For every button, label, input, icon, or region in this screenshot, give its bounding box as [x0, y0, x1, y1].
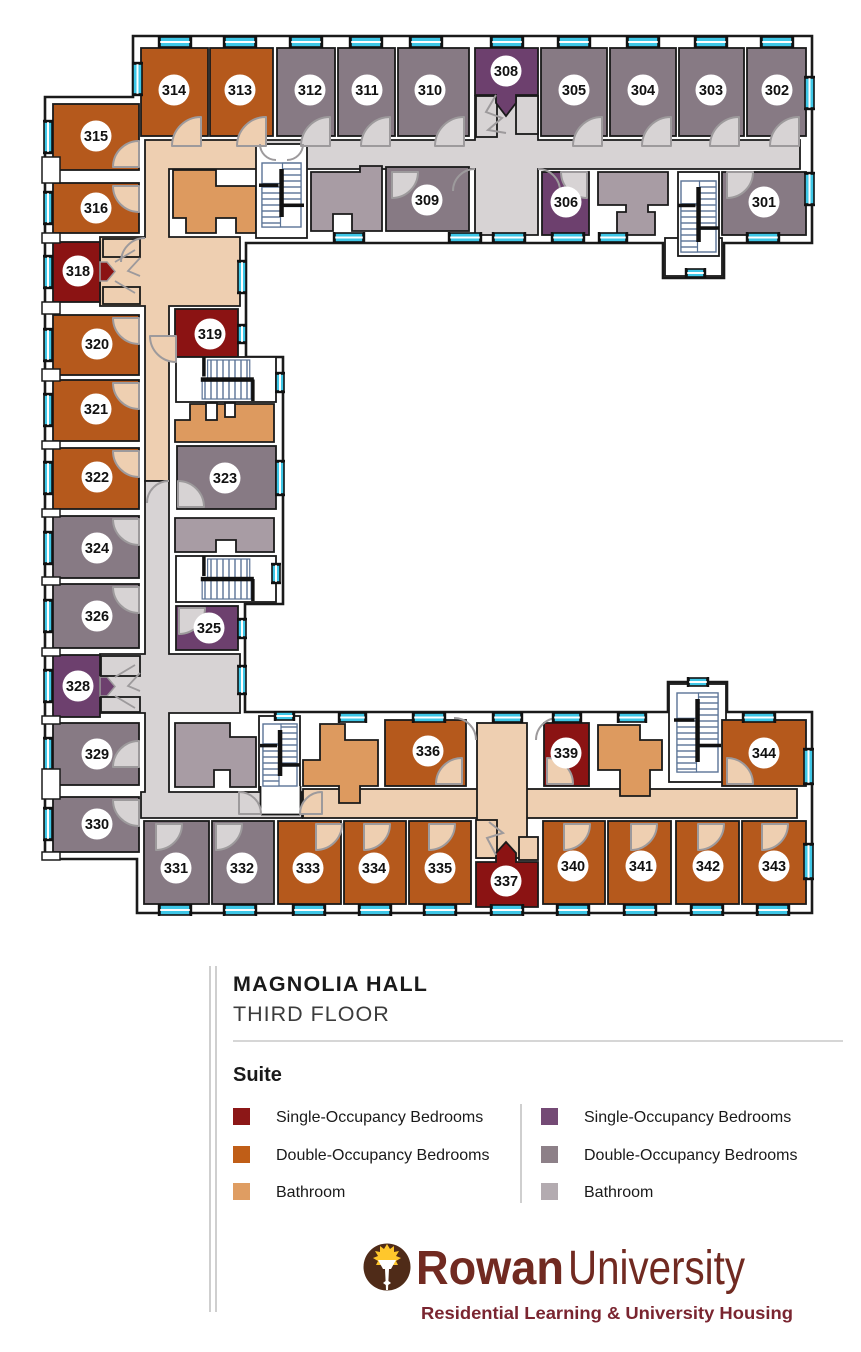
svg-text:305: 305	[562, 83, 586, 99]
svg-text:Single-Occupancy Bedrooms: Single-Occupancy Bedrooms	[584, 1109, 791, 1126]
svg-text:318: 318	[66, 264, 90, 280]
svg-text:339: 339	[554, 746, 578, 762]
svg-text:302: 302	[765, 83, 789, 99]
svg-text:334: 334	[362, 861, 386, 877]
svg-text:328: 328	[66, 679, 90, 695]
svg-text:308: 308	[494, 64, 518, 80]
svg-text:335: 335	[428, 861, 452, 877]
svg-text:Bathroom: Bathroom	[584, 1184, 653, 1201]
svg-text:Suite: Suite	[233, 1064, 282, 1086]
svg-text:337: 337	[494, 874, 518, 890]
svg-text:320: 320	[85, 337, 109, 353]
svg-text:332: 332	[230, 861, 254, 877]
svg-text:340: 340	[561, 859, 585, 875]
svg-text:312: 312	[298, 83, 322, 99]
svg-text:344: 344	[752, 746, 776, 762]
svg-text:315: 315	[84, 129, 108, 145]
svg-text:330: 330	[85, 817, 109, 833]
svg-text:Double-Occupancy Bedrooms: Double-Occupancy Bedrooms	[584, 1147, 797, 1164]
svg-text:306: 306	[554, 195, 578, 211]
svg-text:333: 333	[296, 861, 320, 877]
svg-text:341: 341	[629, 859, 653, 875]
svg-text:Single-Occupancy Bedrooms: Single-Occupancy Bedrooms	[276, 1109, 483, 1126]
svg-text:Residential Learning & Univers: Residential Learning & University Housin…	[421, 1303, 793, 1323]
svg-text:324: 324	[85, 541, 109, 557]
svg-text:310: 310	[418, 83, 442, 99]
svg-text:MAGNOLIA HALL: MAGNOLIA HALL	[233, 972, 428, 996]
svg-text:325: 325	[197, 621, 221, 637]
svg-text:316: 316	[84, 201, 108, 217]
svg-text:304: 304	[631, 83, 655, 99]
svg-text:Double-Occupancy Bedrooms: Double-Occupancy Bedrooms	[276, 1147, 489, 1164]
svg-text:309: 309	[415, 193, 439, 209]
svg-text:311: 311	[355, 83, 378, 99]
svg-text:336: 336	[416, 744, 440, 760]
svg-text:THIRD FLOOR: THIRD FLOOR	[233, 1002, 390, 1026]
svg-text:University: University	[568, 1242, 745, 1295]
svg-text:322: 322	[85, 470, 109, 486]
svg-text:323: 323	[213, 471, 237, 487]
svg-text:303: 303	[699, 83, 723, 99]
svg-text:301: 301	[752, 195, 776, 211]
svg-text:329: 329	[85, 747, 109, 763]
svg-text:Bathroom: Bathroom	[276, 1184, 345, 1201]
svg-text:326: 326	[85, 609, 109, 625]
svg-text:313: 313	[228, 83, 252, 99]
svg-text:Rowan: Rowan	[416, 1242, 564, 1295]
svg-text:343: 343	[762, 859, 786, 875]
svg-text:314: 314	[162, 83, 186, 99]
svg-text:321: 321	[84, 402, 108, 418]
svg-text:319: 319	[198, 327, 222, 343]
svg-text:342: 342	[696, 859, 720, 875]
svg-text:331: 331	[164, 861, 188, 877]
